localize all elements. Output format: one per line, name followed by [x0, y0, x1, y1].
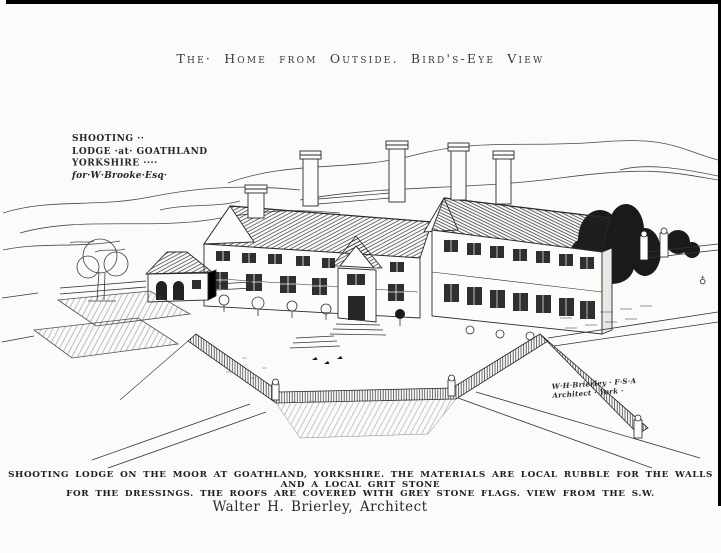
inscription-line-2: LODGE ·at· GOATHLAND [72, 146, 208, 158]
lawn-birds [312, 356, 343, 364]
caption-line-1: SHOOTING LODGE ON THE MOOR AT GOATHLAND,… [0, 471, 721, 490]
inscription-line-1: SHOOTING ·· [72, 134, 208, 146]
caption: SHOOTING LODGE ON THE MOOR AT GOATHLAND,… [0, 471, 721, 499]
scanned-page: The· Home from Outside. Bird's-Eye View [0, 0, 721, 553]
drawing-inscription: SHOOTING ·· LODGE ·at· GOATHLAND YORKSHI… [72, 134, 208, 182]
inscription-line-3: YORKSHIRE ···· [72, 158, 208, 170]
lodge-building [204, 141, 612, 335]
inscription-line-4: for·W·Brooke·Esq· [72, 170, 208, 182]
margin-mark: ♁ [699, 275, 706, 286]
architect-credit: Walter H. Brierley, Architect [0, 499, 640, 515]
